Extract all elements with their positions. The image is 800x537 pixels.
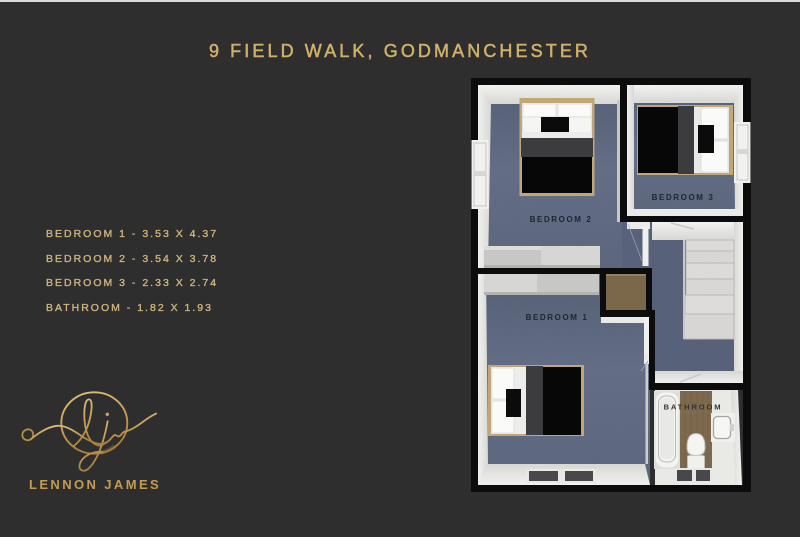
svg-text:BEDROOM 2: BEDROOM 2 [530, 215, 593, 224]
svg-text:BEDROOM 1: BEDROOM 1 [526, 313, 589, 322]
svg-text:BEDROOM 3: BEDROOM 3 [652, 193, 715, 202]
svg-text:BATHROOM: BATHROOM [664, 403, 723, 412]
